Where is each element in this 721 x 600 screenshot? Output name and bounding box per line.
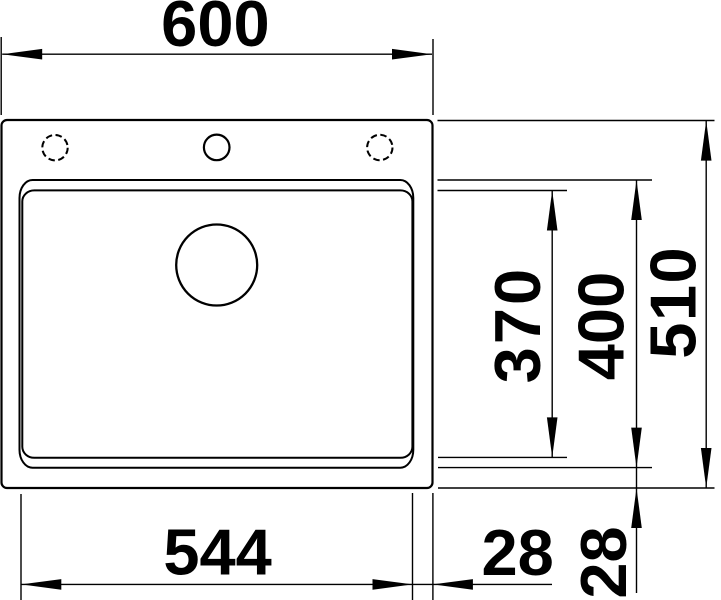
svg-text:370: 370 — [481, 266, 554, 383]
svg-text:544: 544 — [163, 515, 271, 588]
svg-text:510: 510 — [636, 246, 709, 359]
svg-text:28: 28 — [481, 516, 553, 589]
svg-text:28: 28 — [567, 526, 640, 598]
svg-text:600: 600 — [161, 0, 269, 60]
svg-text:400: 400 — [565, 272, 638, 380]
